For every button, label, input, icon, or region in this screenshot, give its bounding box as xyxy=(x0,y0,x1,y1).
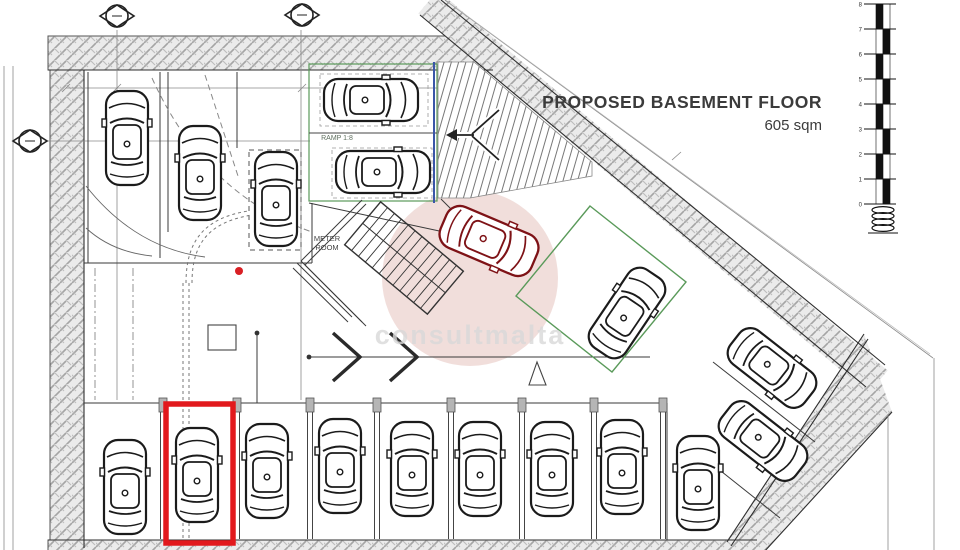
basement-floor-plan-page: PROPOSED BASEMENT FLOOR 605 sqm RAMP 1:8… xyxy=(0,0,960,550)
west-wall xyxy=(50,70,84,548)
meter-room-label-2: ROOM xyxy=(315,243,338,252)
area-label: 605 sqm xyxy=(764,117,822,134)
car xyxy=(336,147,430,197)
car xyxy=(242,424,292,518)
car xyxy=(324,75,418,125)
meter-room-label-1: METER xyxy=(314,234,341,243)
car xyxy=(673,436,723,530)
car xyxy=(172,428,222,522)
floor-plan-svg: PROPOSED BASEMENT FLOOR 605 sqm RAMP 1:8… xyxy=(0,0,960,550)
car xyxy=(102,91,152,185)
car xyxy=(251,152,301,246)
car xyxy=(597,420,647,514)
watermark-text: consultmalta xyxy=(375,320,566,350)
car xyxy=(100,440,150,534)
car xyxy=(315,419,365,513)
page-title: PROPOSED BASEMENT FLOOR xyxy=(542,92,822,112)
car xyxy=(175,126,225,220)
red-dot-marker xyxy=(235,267,243,275)
ramp-label: RAMP 1:8 xyxy=(321,135,353,142)
car xyxy=(527,422,577,516)
car xyxy=(455,422,505,516)
south-wall xyxy=(48,540,757,550)
car xyxy=(387,422,437,516)
north-wall xyxy=(48,36,493,70)
